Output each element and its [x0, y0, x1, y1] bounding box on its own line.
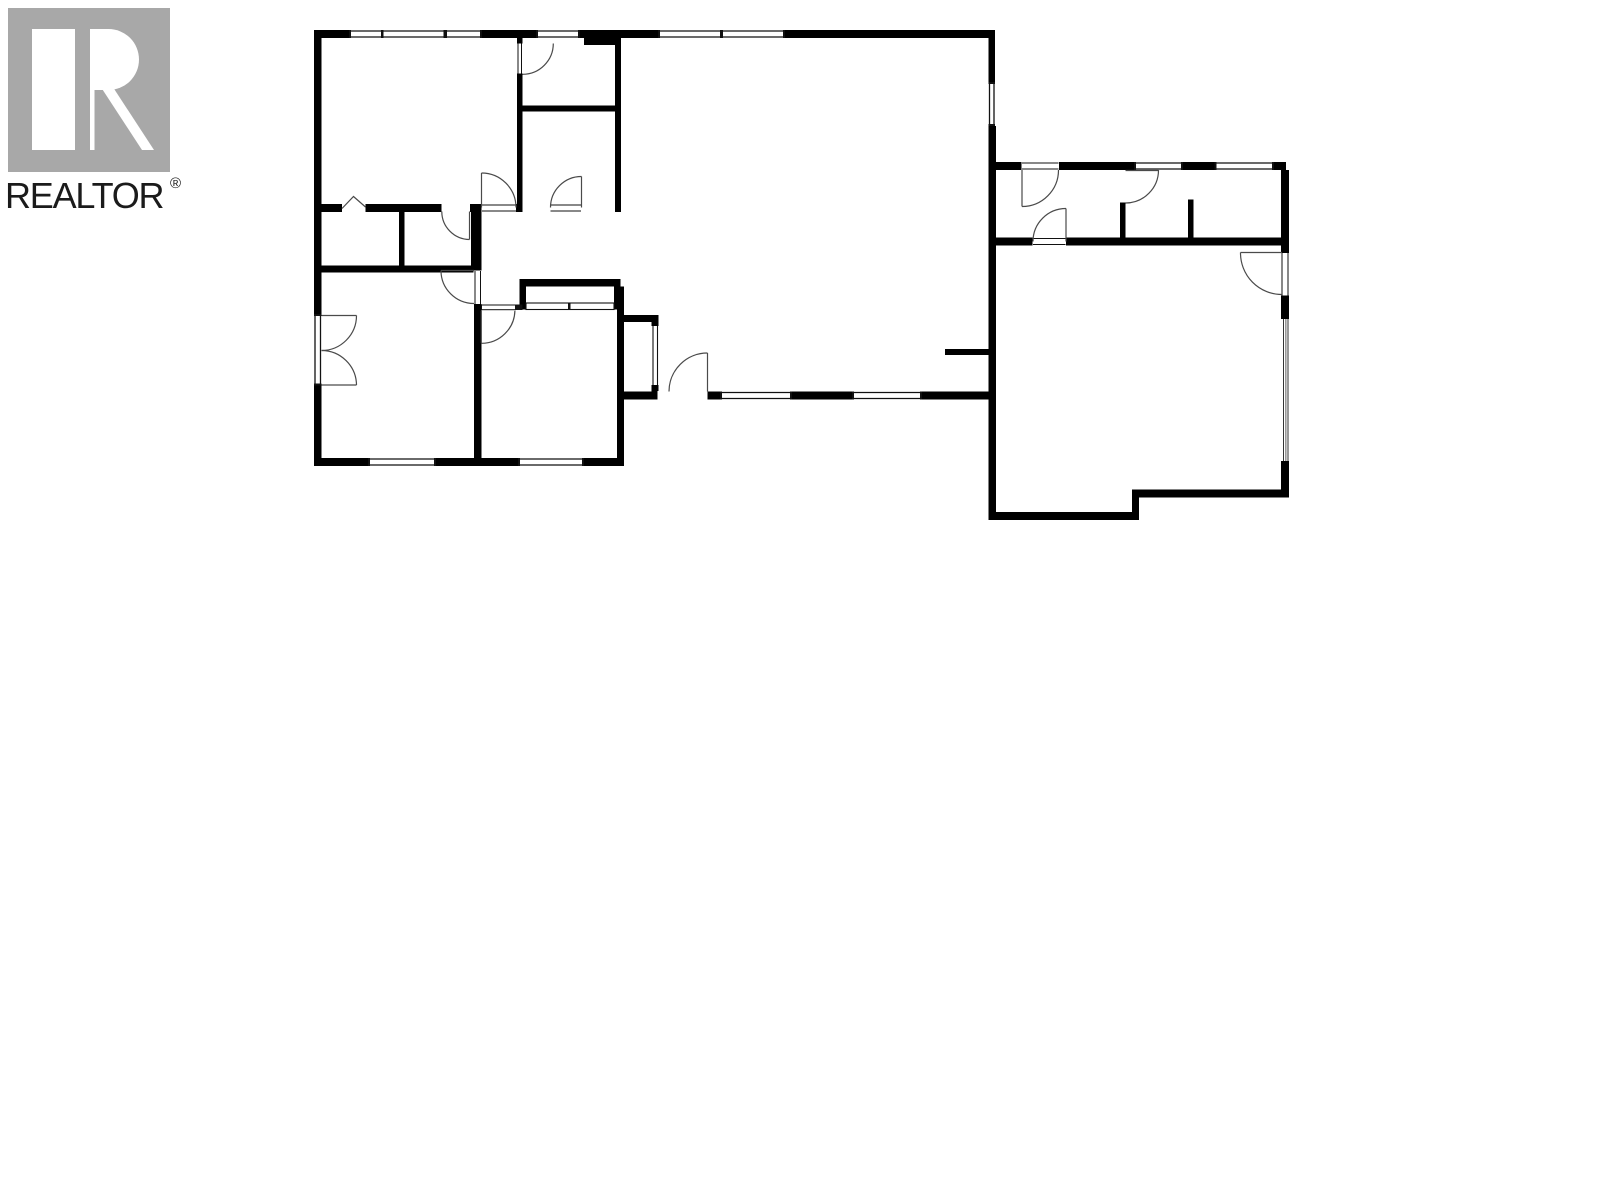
svg-text:®: ® [170, 175, 181, 192]
svg-text:REALTOR: REALTOR [5, 175, 164, 216]
